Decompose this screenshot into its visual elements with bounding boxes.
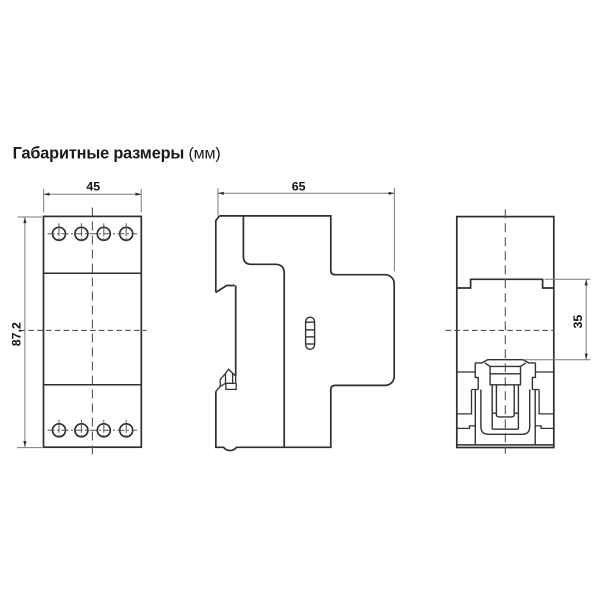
svg-text:45: 45	[86, 179, 100, 193]
svg-text:87,2: 87,2	[9, 322, 23, 346]
svg-text:Габаритные размеры (мм): Габаритные размеры (мм)	[13, 145, 221, 163]
svg-text:65: 65	[292, 179, 306, 193]
svg-text:35: 35	[571, 315, 585, 329]
